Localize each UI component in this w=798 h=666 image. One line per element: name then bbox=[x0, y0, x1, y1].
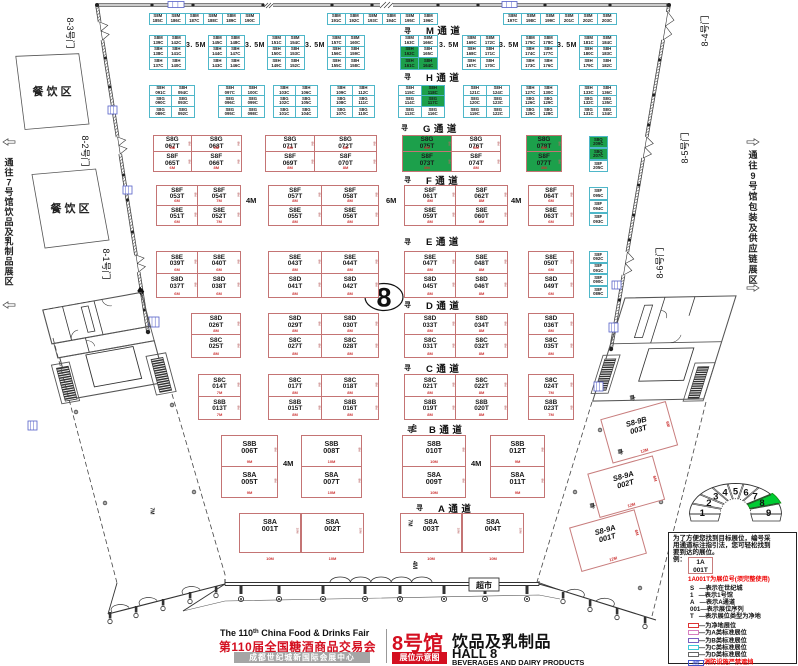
svg-text:通: 通 bbox=[748, 149, 757, 160]
svg-text:及: 及 bbox=[4, 227, 14, 237]
svg-text:8-1号门: 8-1号门 bbox=[101, 248, 112, 279]
svg-text:装: 装 bbox=[747, 211, 758, 222]
svg-text:1: 1 bbox=[700, 508, 706, 519]
svg-text:餐 饮 区: 餐 饮 区 bbox=[49, 201, 89, 215]
svg-text:号: 号 bbox=[748, 181, 757, 191]
svg-text:6: 6 bbox=[743, 488, 748, 499]
svg-text:供: 供 bbox=[747, 232, 757, 243]
svg-text:链: 链 bbox=[748, 253, 758, 264]
svg-text:餐 饮 区: 餐 饮 区 bbox=[31, 84, 71, 98]
svg-text:展: 展 bbox=[4, 266, 13, 276]
svg-text:应: 应 bbox=[748, 243, 757, 254]
svg-text:通: 通 bbox=[4, 157, 13, 168]
svg-text:8-4号门: 8-4号门 bbox=[699, 15, 710, 46]
svg-text:及: 及 bbox=[748, 223, 758, 233]
svg-text:展: 展 bbox=[748, 264, 757, 274]
svg-text:馆: 馆 bbox=[748, 191, 757, 202]
svg-text:往: 往 bbox=[748, 159, 757, 170]
svg-text:饮: 饮 bbox=[3, 206, 14, 217]
svg-text:8-3号门: 8-3号门 bbox=[65, 17, 76, 48]
svg-text:品: 品 bbox=[4, 257, 13, 267]
svg-text:制: 制 bbox=[4, 246, 13, 257]
svg-text:超市: 超市 bbox=[475, 580, 492, 590]
svg-text:8-2号门: 8-2号门 bbox=[80, 135, 91, 166]
svg-text:区: 区 bbox=[4, 276, 13, 286]
svg-text:号: 号 bbox=[4, 187, 13, 197]
svg-text:品: 品 bbox=[4, 217, 13, 227]
svg-text:包: 包 bbox=[747, 201, 757, 212]
svg-text:8-6号门: 8-6号门 bbox=[654, 247, 665, 278]
svg-text:8: 8 bbox=[759, 498, 764, 509]
svg-text:区: 区 bbox=[748, 275, 757, 285]
svg-text:往: 往 bbox=[4, 166, 13, 177]
svg-text:5: 5 bbox=[733, 486, 739, 497]
svg-text:7: 7 bbox=[753, 492, 758, 503]
svg-text:寻: 寻 bbox=[628, 393, 636, 402]
svg-text:9: 9 bbox=[750, 171, 755, 181]
svg-text:4: 4 bbox=[722, 488, 728, 499]
svg-text:乳: 乳 bbox=[4, 236, 13, 247]
svg-text:馆: 馆 bbox=[4, 196, 13, 207]
svg-text:8-5号门: 8-5号门 bbox=[679, 132, 690, 163]
svg-text:2: 2 bbox=[706, 498, 711, 509]
svg-text:3: 3 bbox=[713, 492, 718, 503]
svg-text:9: 9 bbox=[766, 508, 771, 519]
svg-text:7: 7 bbox=[6, 177, 11, 187]
svg-text:寻: 寻 bbox=[588, 501, 596, 510]
